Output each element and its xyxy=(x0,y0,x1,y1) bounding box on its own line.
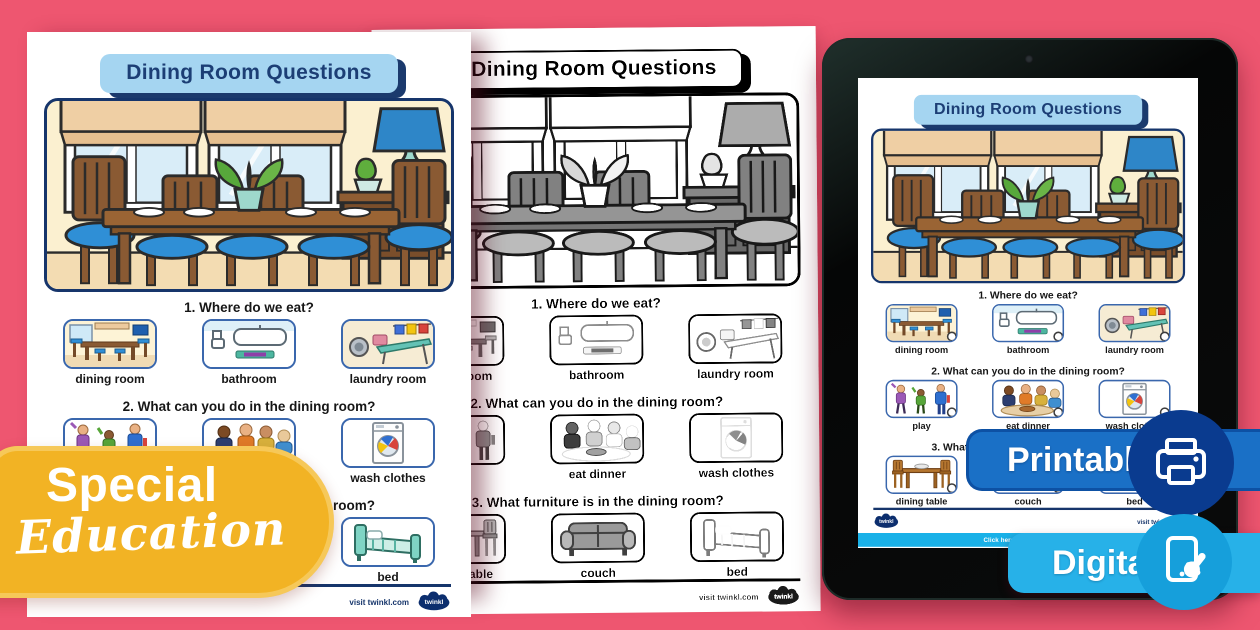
option-play-label: play xyxy=(912,420,930,431)
question-1-text: 1. Where do we eat? xyxy=(184,300,314,315)
option-bed-image[interactable] xyxy=(341,517,435,567)
option-laundry-room[interactable]: laundry room xyxy=(676,313,795,381)
option-dining-room-image[interactable] xyxy=(886,304,958,342)
option-play-image[interactable] xyxy=(886,380,958,418)
option-bed-label: bed xyxy=(377,570,398,584)
option-wash-clothes[interactable]: wash clothes xyxy=(677,412,796,480)
worksheet-title: Dining Room Questions xyxy=(100,54,397,93)
category-badge-line2: Education xyxy=(15,501,287,564)
option-bed[interactable]: bed xyxy=(329,517,447,584)
option-bathroom-image[interactable] xyxy=(992,304,1064,342)
option-bathroom[interactable]: bathroom xyxy=(190,319,308,386)
worksheet-title-text: Dining Room Questions xyxy=(126,61,371,84)
option-laundry-room-image[interactable] xyxy=(1099,304,1171,342)
option-bathroom-image[interactable] xyxy=(549,315,643,366)
worksheet-title: Dining Room Questions xyxy=(445,49,743,91)
svg-text:twinkl: twinkl xyxy=(425,599,444,606)
svg-text:twinkl: twinkl xyxy=(774,593,793,600)
svg-text:twinkl: twinkl xyxy=(879,519,894,525)
question-1-text: 1. Where do we eat? xyxy=(978,289,1077,300)
option-laundry-room[interactable]: laundry room xyxy=(1089,304,1179,355)
option-laundry-room-label: laundry room xyxy=(350,372,427,386)
option-eat-dinner-image[interactable] xyxy=(992,380,1064,418)
question-1-text: 1. Where do we eat? xyxy=(531,295,661,311)
option-couch[interactable]: couch xyxy=(539,512,658,580)
camera-icon xyxy=(1025,55,1033,63)
question-2-options: play xyxy=(876,380,1179,431)
option-play[interactable]: play xyxy=(876,380,966,431)
option-couch-label: couch xyxy=(581,566,616,580)
option-bathroom-label: bathroom xyxy=(221,372,276,386)
dining-room-illustration xyxy=(871,129,1185,284)
question-2-text: 2. What can you do in the dining room? xyxy=(470,394,723,411)
worksheet-title: Dining Room Questions xyxy=(914,95,1142,125)
option-bed-image[interactable] xyxy=(690,511,784,562)
option-bathroom[interactable]: bathroom xyxy=(537,314,656,382)
twinkl-logo: twinkl xyxy=(417,591,451,613)
option-wash-clothes-image[interactable] xyxy=(689,412,783,463)
option-bathroom-image[interactable] xyxy=(202,319,296,369)
option-dining-room[interactable]: dining room xyxy=(51,319,169,386)
question-1-options: dining room bathroom xyxy=(876,304,1179,355)
option-bed[interactable]: bed xyxy=(678,511,797,579)
dining-room-illustration xyxy=(44,98,454,292)
question-2-text: 2. What can you do in the dining room? xyxy=(931,365,1125,376)
option-dining-room-image[interactable] xyxy=(63,319,157,369)
option-eat-dinner-image[interactable] xyxy=(550,414,644,465)
option-laundry-room-label: laundry room xyxy=(697,366,774,381)
twinkl-logo: twinkl xyxy=(873,513,899,530)
option-eat-dinner[interactable]: eat dinner xyxy=(538,413,657,481)
twinkl-logo: twinkl xyxy=(766,585,800,607)
option-dining-room-label: dining room xyxy=(895,345,948,356)
option-laundry-room-image[interactable] xyxy=(688,313,782,364)
option-bathroom[interactable]: bathroom xyxy=(983,304,1073,355)
question-1-options: dining room bathroom xyxy=(51,319,447,386)
option-couch-label: couch xyxy=(1015,496,1042,507)
option-dining-table-label: dining table xyxy=(896,496,948,507)
question-3-text: 3. What furniture is in the dining room? xyxy=(472,493,724,510)
option-wash-clothes-image[interactable] xyxy=(1099,380,1171,418)
question-2-text: 2. What can you do in the dining room? xyxy=(123,399,376,414)
tablet-touch-icon xyxy=(1136,514,1232,610)
option-dining-room[interactable]: dining room xyxy=(876,304,966,355)
worksheet-title-text: Dining Room Questions xyxy=(471,56,717,81)
printer-icon xyxy=(1128,410,1234,516)
option-couch-image[interactable] xyxy=(551,513,645,564)
option-dining-room-label: dining room xyxy=(75,372,144,386)
option-dining-table-image[interactable] xyxy=(886,456,958,494)
option-wash-clothes-image[interactable] xyxy=(341,418,435,468)
option-laundry-room-label: laundry room xyxy=(1105,345,1164,356)
option-wash-clothes-label: wash clothes xyxy=(699,465,774,480)
option-bathroom-label: bathroom xyxy=(1007,345,1049,356)
option-wash-clothes-label: wash clothes xyxy=(350,471,425,485)
visit-link[interactable]: visit twinkl.com xyxy=(349,598,409,607)
option-dining-table[interactable]: dining table xyxy=(876,456,966,507)
worksheet-footer: twinkl visit twinkl.com twinkl xyxy=(873,508,1182,533)
option-bathroom-label: bathroom xyxy=(569,368,624,382)
option-eat-dinner[interactable]: eat dinner xyxy=(983,380,1073,431)
worksheet-title-text: Dining Room Questions xyxy=(934,100,1122,118)
option-wash-clothes[interactable]: wash clothes xyxy=(329,418,447,485)
category-badge-special-education: Special Education xyxy=(0,446,334,598)
option-laundry-room-image[interactable] xyxy=(341,319,435,369)
option-laundry-room[interactable]: laundry room xyxy=(329,319,447,386)
option-bed-label: bed xyxy=(727,565,748,579)
option-eat-dinner-label: eat dinner xyxy=(569,467,626,482)
visit-link[interactable]: visit twinkl.com xyxy=(699,592,759,602)
